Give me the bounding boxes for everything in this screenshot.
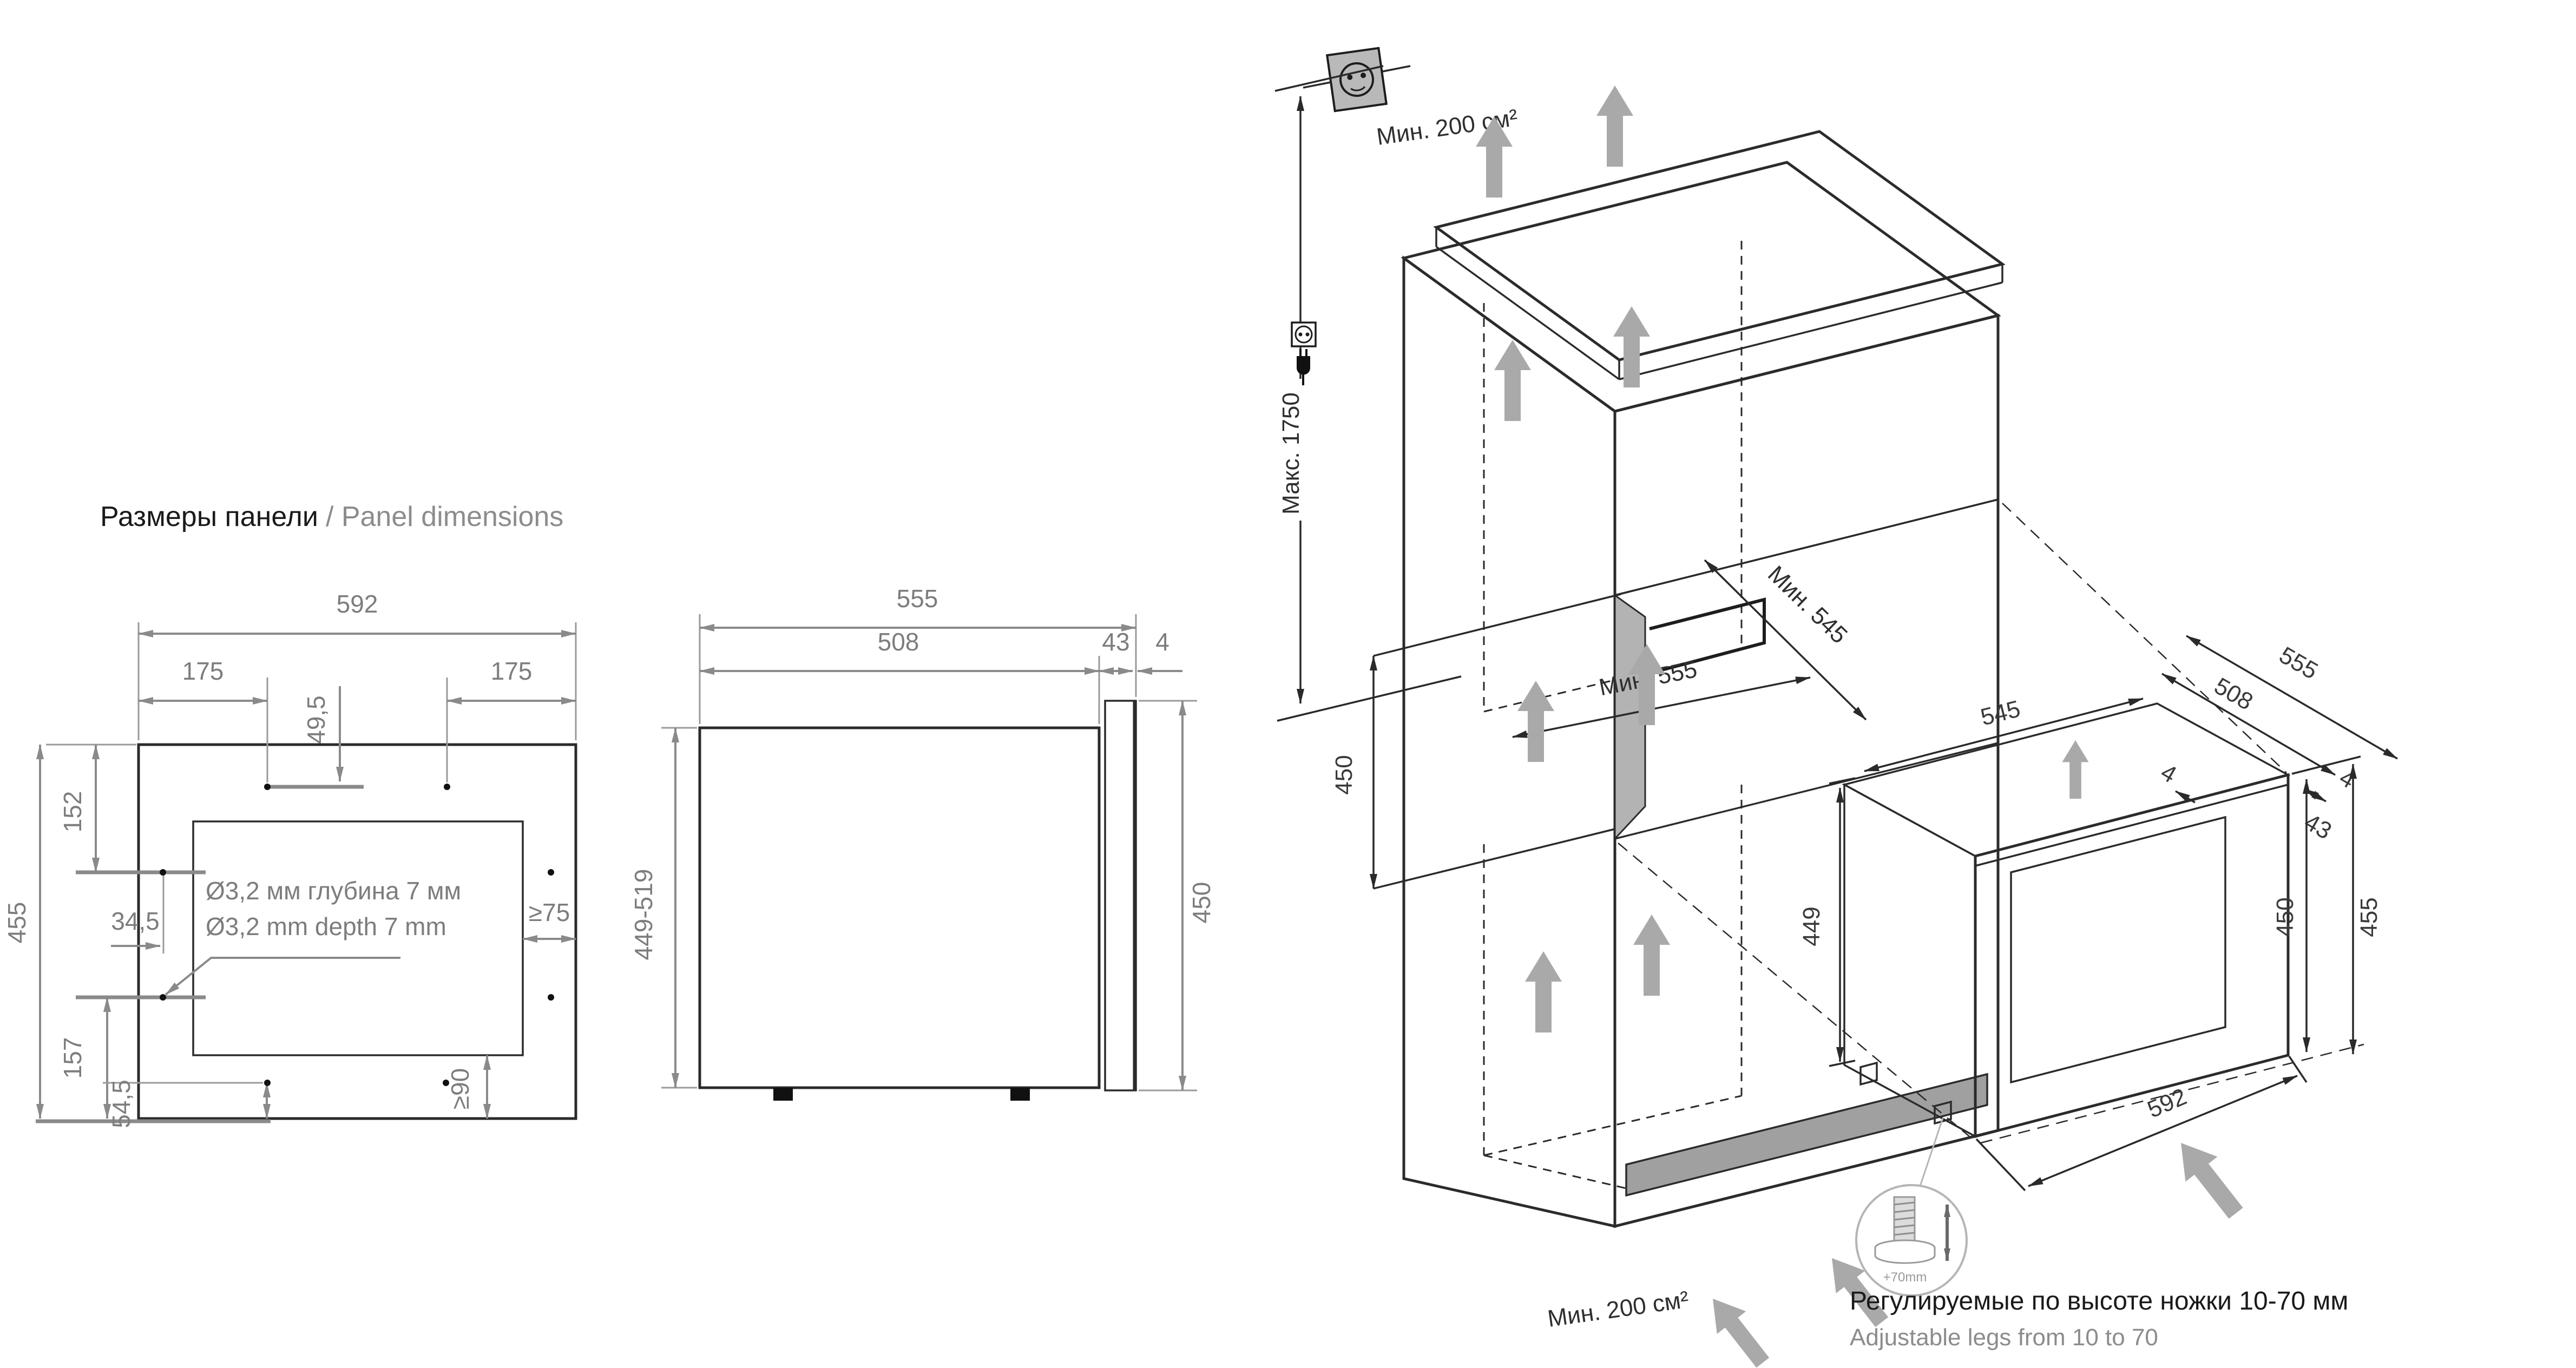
side-foot [1010, 1088, 1030, 1101]
dim-152: 152 [58, 791, 87, 833]
dim-appliance-508: 508 [2210, 673, 2257, 715]
dim-niche-depth: Мин. 545 [1763, 561, 1852, 649]
ref-line-bottom [1277, 676, 1461, 721]
insertion-direction-arrow-icon [2165, 1130, 2252, 1226]
hole-dot [548, 994, 554, 1001]
dim-side-555: 555 [897, 584, 938, 613]
dim-455: 455 [3, 902, 31, 944]
dim-side-43: 43 [1102, 628, 1129, 656]
dim-449-519: 449-519 [629, 869, 658, 961]
socket-ref-line [1383, 66, 1410, 71]
dim-side-4: 4 [1155, 628, 1169, 656]
side-foot [773, 1088, 793, 1101]
dim-ge90: ≥90 [446, 1068, 474, 1109]
power-socket-icon [1327, 48, 1386, 111]
dim-hole-offset-right: 175 [491, 657, 533, 685]
hole-dot [160, 869, 166, 876]
dim-appliance-450: 450 [2272, 897, 2298, 937]
airflow-arrow-icon [1633, 915, 1670, 996]
dim-max-1750: Макс. 1750 [1278, 392, 1304, 515]
ext-line [1976, 1139, 2025, 1191]
dim-hole-offset-left: 175 [182, 657, 224, 685]
panel-side-view: 555 508 43 4 449-519 450 [629, 584, 1215, 1101]
airflow-arrow-icon [1494, 340, 1531, 421]
dim-side-508: 508 [878, 628, 919, 656]
hole-dot [443, 1080, 449, 1086]
legs-caption-ru: Регулируемые по высоте ножки 10-70 мм [1850, 1287, 2348, 1316]
projection-line [1618, 843, 1973, 1139]
airflow-arrows [1476, 85, 2252, 1368]
dim-appliance-545: 545 [1978, 695, 2023, 731]
airflow-arrow-icon [1698, 1287, 1777, 1368]
manual-page: Размеры панели/ Panel dimensions 592 175… [0, 0, 2576, 1368]
ext-line [1829, 1061, 1855, 1066]
note-leader-line [166, 958, 400, 995]
dim-appliance-4b: 4 [2335, 764, 2360, 794]
plug-icon [1297, 349, 1310, 385]
dim-appliance-555: 555 [2275, 642, 2322, 685]
appliance-foot [1861, 1063, 1877, 1084]
legs-range-label: +70mm [1883, 1270, 1927, 1285]
vent-area-bottom: Мин. 200 см² [1546, 1286, 1691, 1332]
dim-appliance-455: 455 [2356, 897, 2382, 937]
hole-dot [548, 869, 554, 876]
dim-side-450: 450 [1187, 882, 1215, 924]
dim-appliance-592: 592 [2144, 1083, 2191, 1123]
door-top-frame-line [1975, 785, 2288, 866]
airflow-arrow-icon [2062, 740, 2089, 799]
ext-line [1374, 829, 1615, 889]
dim-hole-offset-top: 49,5 [302, 695, 330, 744]
hole-dot [264, 1080, 271, 1086]
hole-dot [160, 994, 166, 1001]
legs-caption-en: Adjustable legs from 10 to 70 [1850, 1324, 2158, 1351]
leader-line [1920, 1118, 1943, 1186]
appliance-door-face [1975, 775, 2288, 1136]
side-door-outline [1105, 701, 1136, 1090]
dim-appliance-449: 449 [1798, 906, 1825, 946]
air-duct-hidden-lines [1484, 241, 1742, 1188]
socket-outline-icon [1292, 323, 1316, 346]
technical-drawing: Размеры панели/ Panel dimensions 592 175… [0, 0, 2576, 1368]
hole-note-en: Ø3,2 mm depth 7 mm [206, 912, 446, 940]
section-title: Размеры панели/ Panel dimensions [100, 501, 563, 532]
dim-157: 157 [58, 1037, 87, 1079]
airflow-arrow-icon [1596, 85, 1633, 167]
installation-view: Макс. 1750 Мин. 200 см² Мин. 200 см² 450… [1275, 48, 2397, 1368]
appliance-unit [1844, 703, 2288, 1136]
dim-niche-height: 450 [1331, 755, 1357, 794]
side-body-outline [700, 728, 1099, 1088]
airflow-arrow-icon [1525, 951, 1562, 1032]
section-title-ru: Размеры панели [100, 501, 318, 532]
hole-note-ru: Ø3,2 мм глубина 7 мм [206, 877, 461, 905]
dim-54-5: 54,5 [107, 1080, 135, 1128]
dim-appliance-4a: 4 [2156, 759, 2181, 788]
legs-detail: +70mm [1856, 1118, 1967, 1295]
dim-panel-width: 592 [337, 590, 378, 618]
hole-dot [264, 784, 271, 790]
dim-ge75: ≥75 [529, 898, 570, 926]
hole-dot [444, 784, 450, 790]
ext-line [1374, 594, 1621, 656]
dim-34-5: 34,5 [111, 907, 160, 935]
dim-appliance-43: 43 [2300, 808, 2336, 845]
section-title-en: / Panel dimensions [326, 501, 563, 532]
airflow-arrow-icon [1517, 681, 1554, 762]
appliance-window [2011, 817, 2225, 1082]
dim-line-43 [2304, 789, 2326, 801]
panel-front-view: 592 175 175 49,5 152 455 34,5 157 54,5 [3, 590, 576, 1128]
